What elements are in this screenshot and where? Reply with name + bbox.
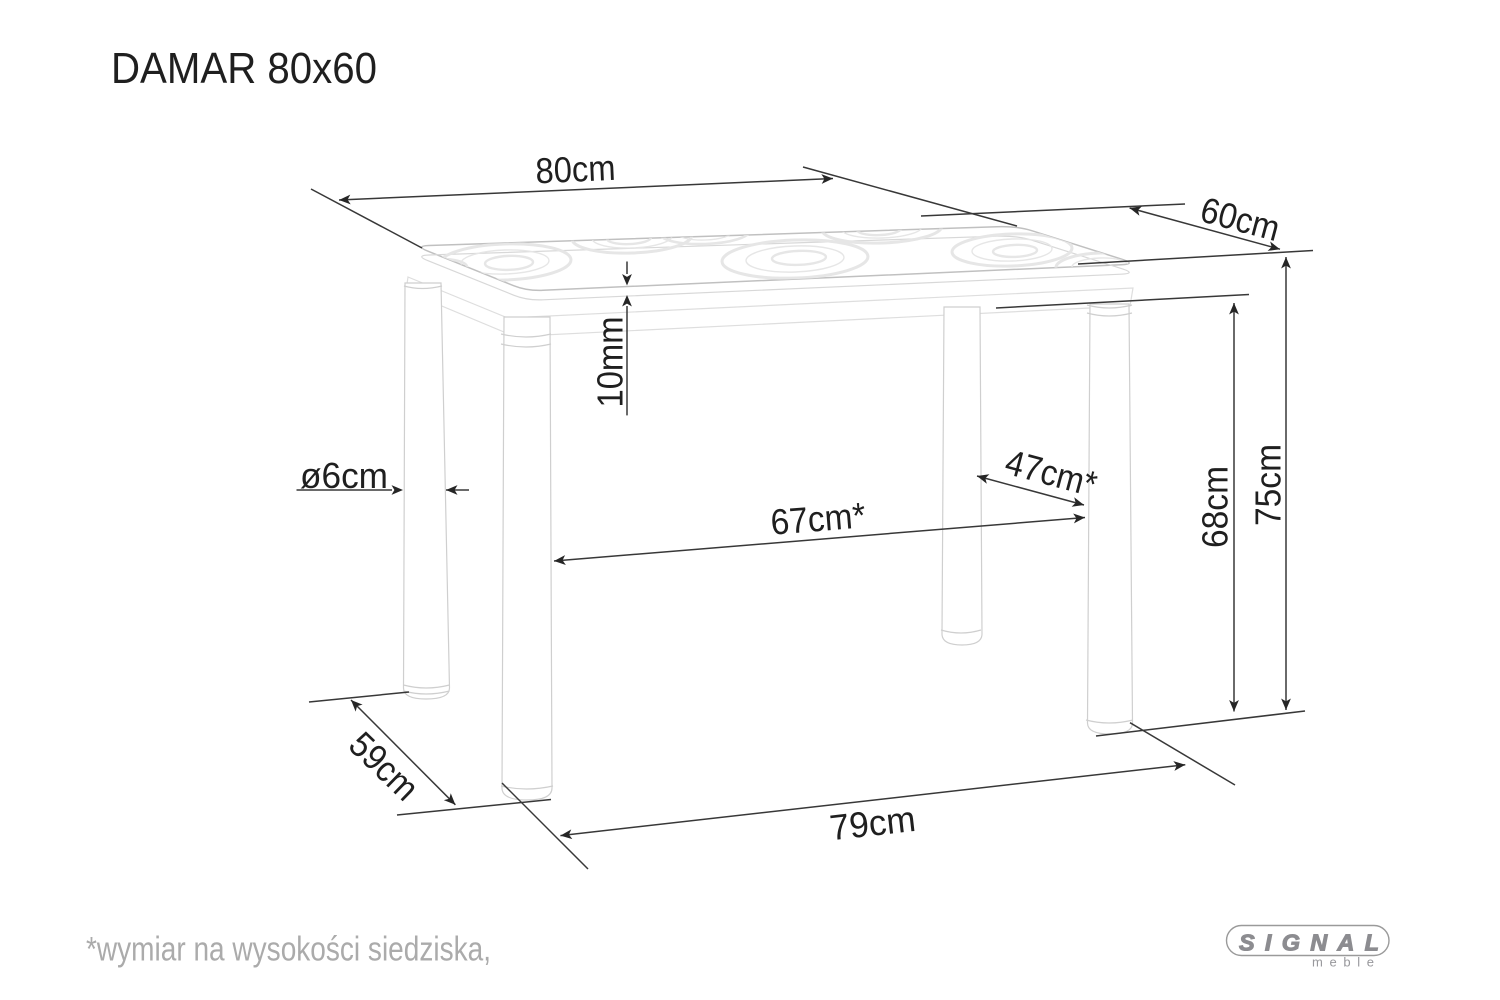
svg-text:79cm: 79cm (828, 798, 918, 848)
svg-text:SIGNAL: SIGNAL (1239, 930, 1379, 956)
svg-text:80cm: 80cm (535, 147, 617, 191)
svg-text:DAMAR 80x60: DAMAR 80x60 (111, 44, 377, 93)
svg-text:*wymiar na wysokości siedziska: *wymiar na wysokości siedziska, (86, 931, 491, 969)
svg-text:47cm*: 47cm* (1001, 441, 1101, 505)
svg-text:10mm: 10mm (590, 317, 631, 408)
svg-text:meble: meble (1312, 955, 1374, 970)
svg-text:60cm: 60cm (1196, 189, 1284, 249)
svg-text:67cm*: 67cm* (769, 494, 867, 542)
svg-text:59cm: 59cm (341, 723, 427, 808)
svg-text:ø6cm: ø6cm (300, 455, 388, 496)
svg-text:68cm: 68cm (1195, 466, 1236, 548)
svg-text:75cm: 75cm (1248, 444, 1289, 526)
